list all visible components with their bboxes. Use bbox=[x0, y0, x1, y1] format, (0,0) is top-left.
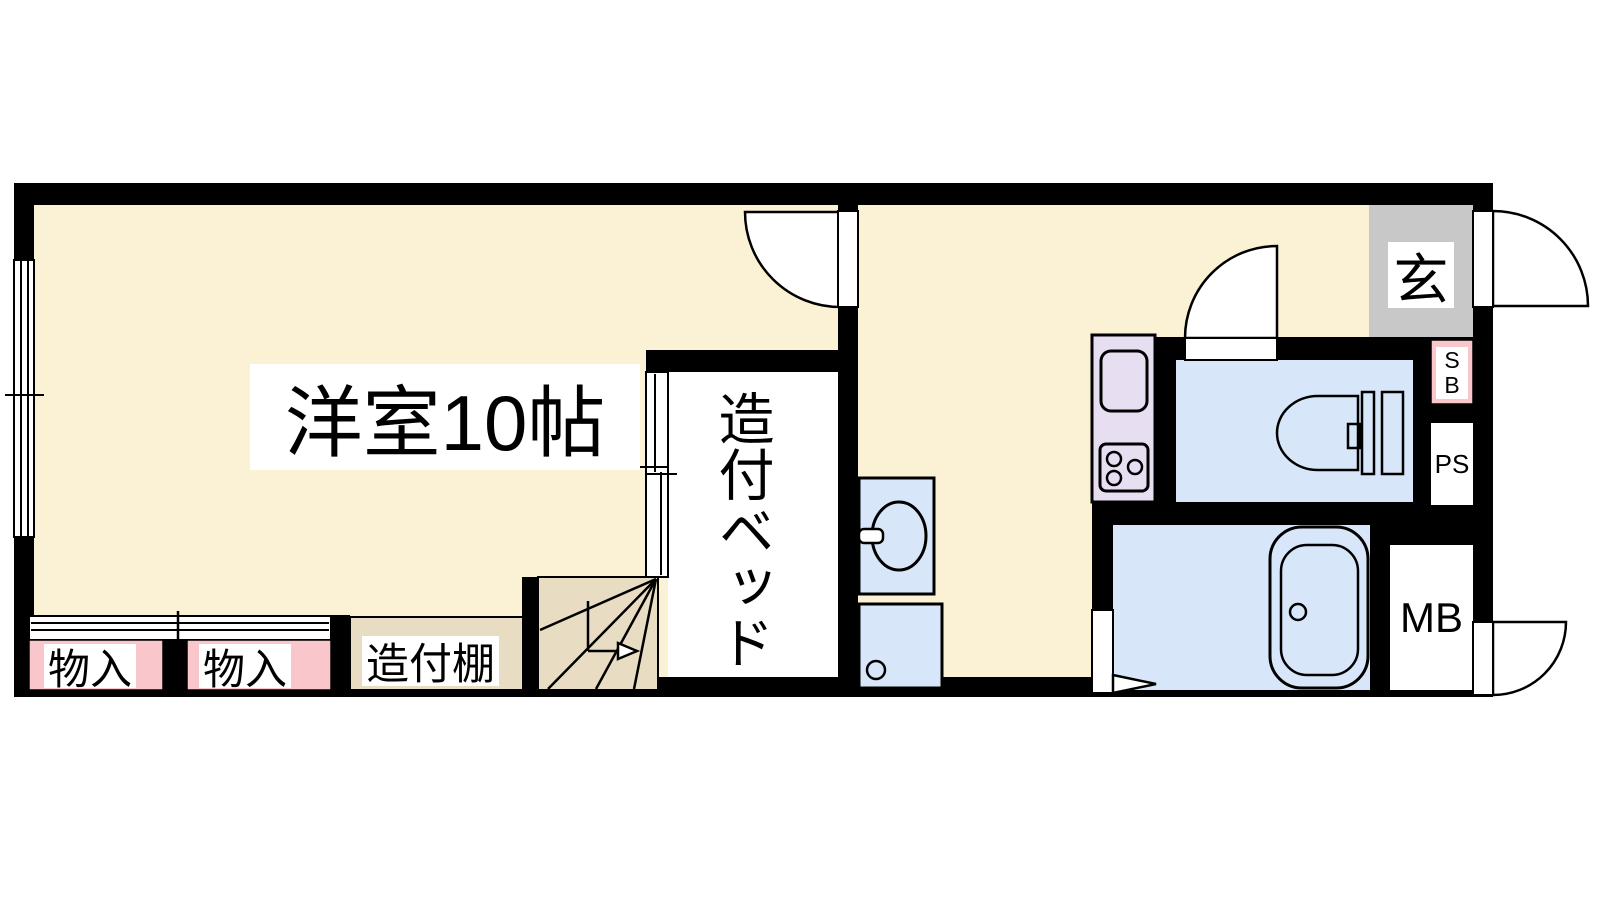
built-in-shelf-label: 造付棚 bbox=[362, 636, 499, 686]
storage-2-label: 物入 bbox=[199, 644, 291, 688]
toilet-room-floor bbox=[1176, 360, 1413, 502]
floor-plan-drawing bbox=[0, 0, 1600, 900]
washbasin-icon bbox=[859, 478, 934, 594]
pipe-space-label: PS bbox=[1431, 423, 1473, 505]
storage-1-label: 物入 bbox=[44, 644, 136, 688]
entrance-label: 玄 bbox=[1388, 242, 1454, 308]
sb-shaft-label: S B bbox=[1436, 347, 1468, 399]
washing-machine-icon bbox=[859, 604, 942, 688]
built-in-bed-label: 造付ベッド bbox=[706, 376, 778, 684]
entrance-door-icon bbox=[1473, 211, 1588, 307]
floor-plan: 洋室10帖 造付ベッド 物入 物入 造付棚 玄 S B PS MB bbox=[0, 0, 1600, 900]
main-room-label: 洋室10帖 bbox=[250, 364, 640, 470]
kitchen-counter-icon bbox=[1092, 335, 1155, 502]
bathroom-floor bbox=[1113, 525, 1370, 690]
meter-box-label: MB bbox=[1390, 545, 1473, 690]
meter-box-door-icon bbox=[1473, 622, 1566, 695]
